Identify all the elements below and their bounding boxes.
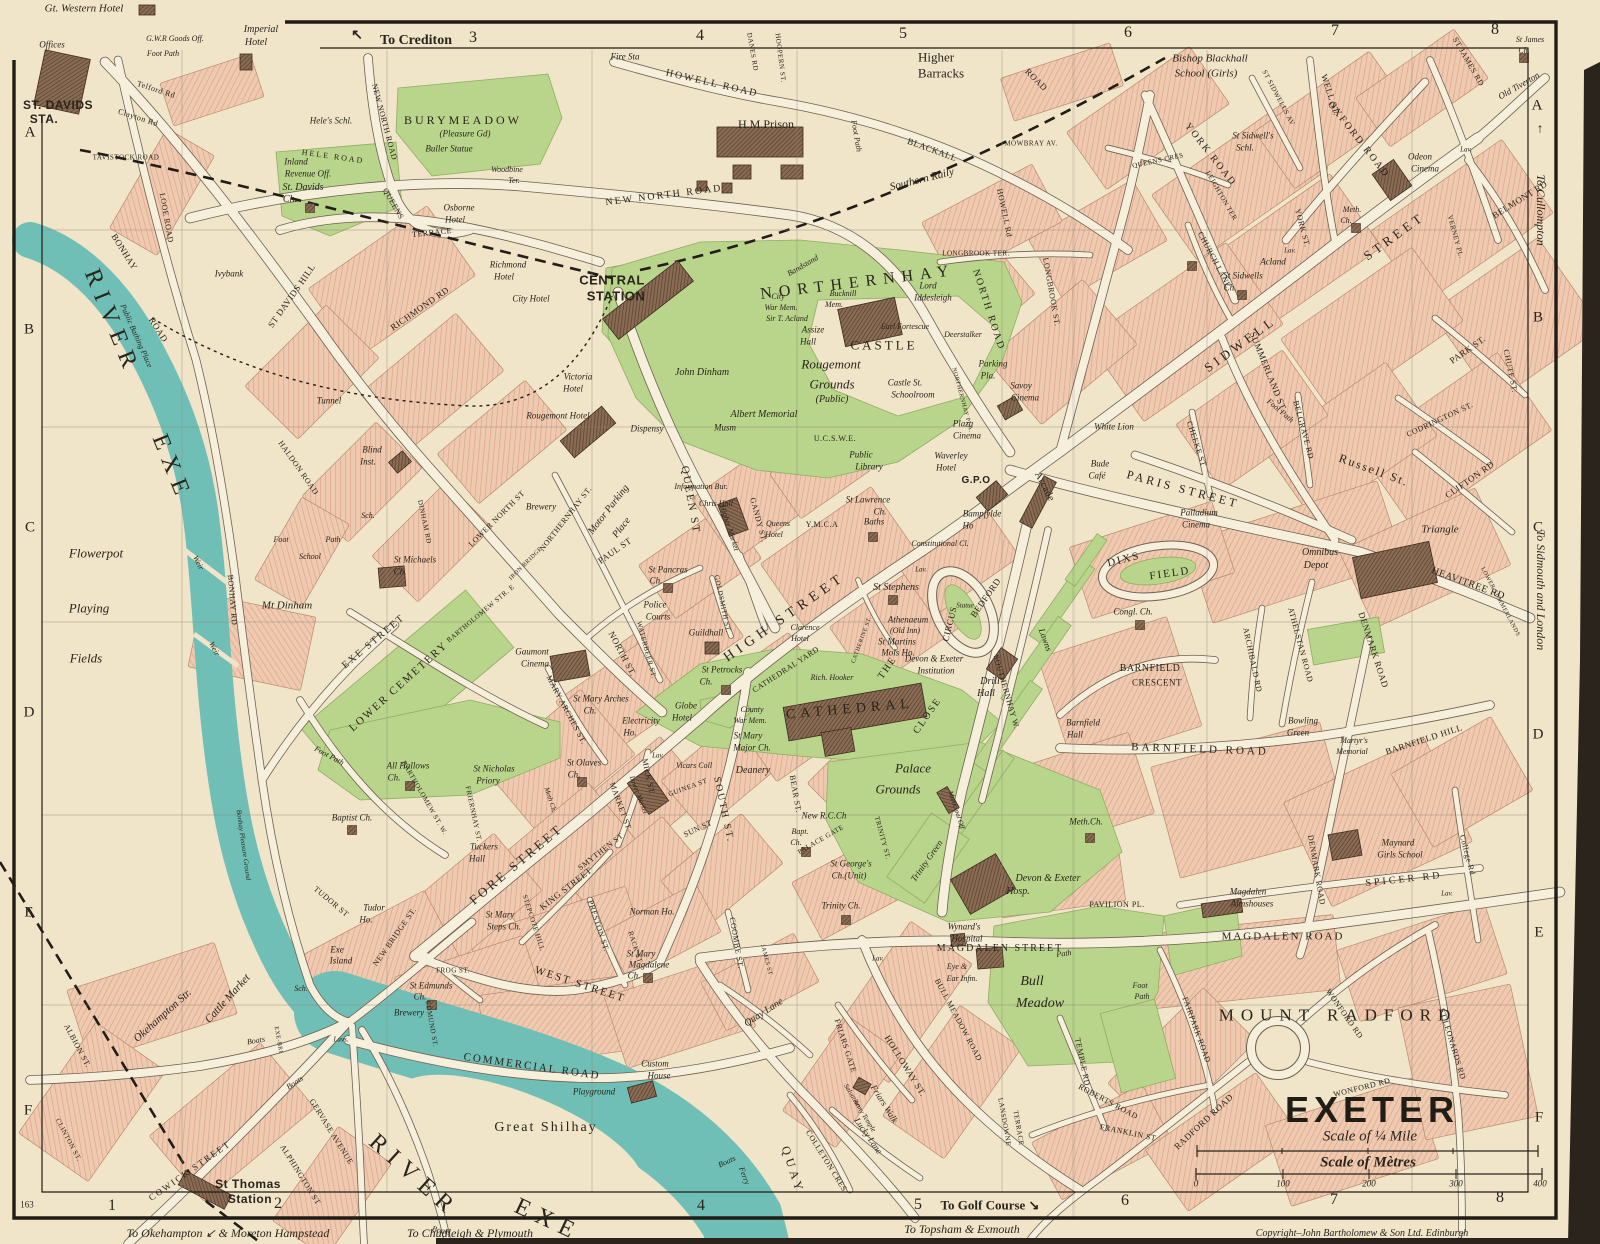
fold-crease <box>1072 22 1075 1218</box>
building <box>705 642 719 654</box>
church-building-dot <box>722 686 731 695</box>
church-building-dot <box>1086 834 1095 843</box>
building <box>951 933 966 946</box>
church-building-dot <box>842 916 851 925</box>
church-building-dot <box>1238 291 1247 300</box>
building <box>240 54 252 70</box>
building <box>139 5 155 15</box>
building <box>1328 830 1362 861</box>
church-building-dot <box>802 848 811 857</box>
church-building-dot <box>348 826 357 835</box>
building <box>717 127 803 157</box>
church-building-dot <box>578 778 587 787</box>
church-building-dot <box>306 204 315 213</box>
building <box>733 165 751 179</box>
building <box>781 165 803 179</box>
church-building-dot <box>644 974 653 983</box>
church-building-dot <box>1520 54 1529 63</box>
building <box>976 947 1004 969</box>
church-building-dot <box>889 596 898 605</box>
park-bury-meadow <box>396 74 562 176</box>
church-building-dot <box>664 584 673 593</box>
scan-edge-bottom <box>436 1238 1600 1244</box>
building <box>697 181 707 191</box>
church-building-dot <box>869 533 878 542</box>
building <box>722 183 732 193</box>
vintage-map-exeter: Gt. Western HotelOfficesST. DAVIDSSTA.G.… <box>0 0 1600 1244</box>
church-building-dot <box>406 782 415 791</box>
church-building-dot <box>1352 224 1361 233</box>
building <box>378 566 406 588</box>
church-building-dot <box>1188 262 1197 271</box>
building <box>821 728 855 757</box>
map-canvas <box>0 0 1600 1244</box>
